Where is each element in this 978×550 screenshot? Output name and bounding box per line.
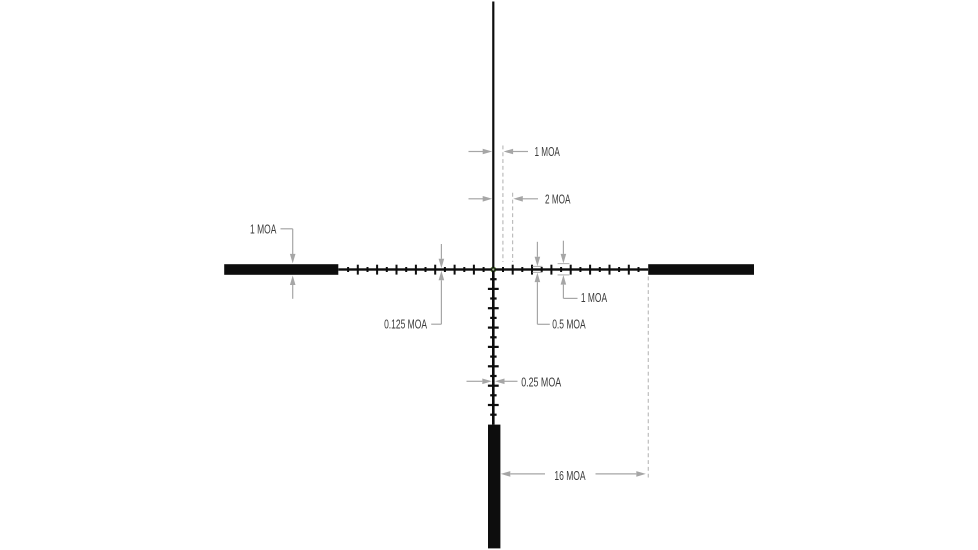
svg-text:0.25 MOA: 0.25 MOA: [521, 376, 562, 390]
svg-text:1 MOA: 1 MOA: [250, 223, 277, 237]
svg-text:1 MOA: 1 MOA: [581, 291, 608, 305]
svg-text:1 MOA: 1 MOA: [535, 145, 561, 159]
svg-text:0.125 MOA: 0.125 MOA: [384, 318, 428, 332]
svg-text:2 MOA: 2 MOA: [545, 193, 571, 207]
svg-text:0.5 MOA: 0.5 MOA: [552, 318, 586, 332]
svg-text:16 MOA: 16 MOA: [554, 469, 586, 483]
